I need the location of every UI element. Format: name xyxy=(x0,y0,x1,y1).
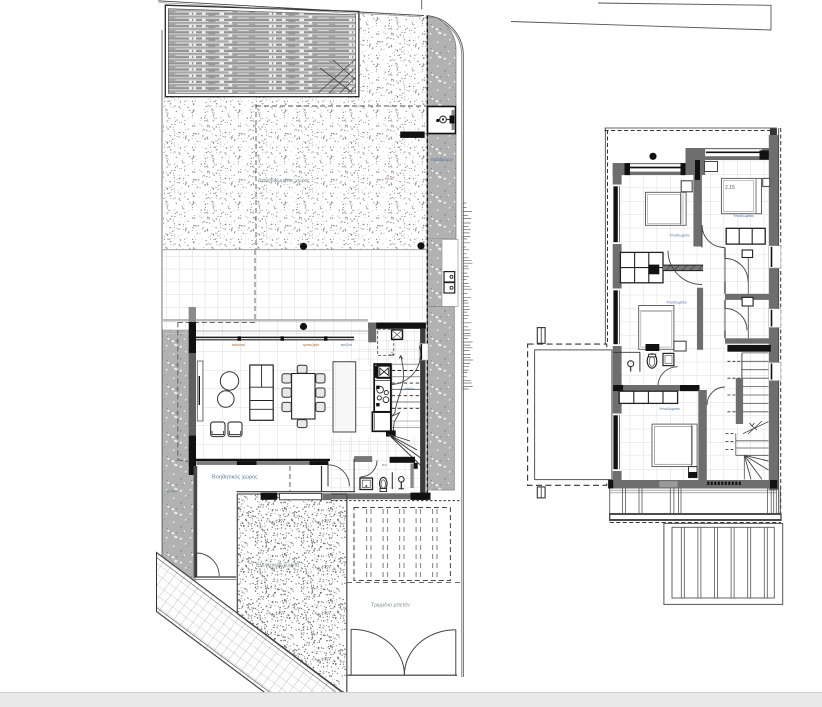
svg-text:Βοηθητικός χώρος: Βοηθητικός χώρος xyxy=(212,474,258,481)
svg-text:Διαμορφωμένος χώρος: Διαμορφωμένος χώρος xyxy=(258,177,310,184)
svg-text:w.c.: w.c. xyxy=(382,463,388,467)
svg-text:Υπνοδωμάτιο: Υπνοδωμάτιο xyxy=(733,214,754,218)
svg-text:κουζίνα: κουζίνα xyxy=(341,343,352,347)
svg-text:2.15: 2.15 xyxy=(725,185,735,191)
svg-text:Υπνοδωμάτιο: Υπνοδωμάτιο xyxy=(666,301,687,305)
svg-text:±0.00: ±0.00 xyxy=(385,177,394,181)
svg-text:Τριμμένο μπετόν: Τριμμένο μπετόν xyxy=(371,602,410,609)
svg-text:καθιστικό: καθιστικό xyxy=(232,343,245,347)
svg-text:Εξωτερικός χώρος: Εξωτερικός χώρος xyxy=(256,562,299,569)
svg-text:τραπεζαρία: τραπεζαρία xyxy=(303,343,319,347)
svg-text:Υπνοδωμάτιο: Υπνοδωμάτιο xyxy=(659,407,680,411)
svg-text:σκάλα: σκάλα xyxy=(405,387,414,391)
svg-text:χαλίκι: χαλίκι xyxy=(166,489,177,494)
svg-text:πεζοδρόμιο: πεζοδρόμιο xyxy=(431,157,453,162)
svg-text:Υπνοδωμάτιο: Υπνοδωμάτιο xyxy=(669,234,690,238)
